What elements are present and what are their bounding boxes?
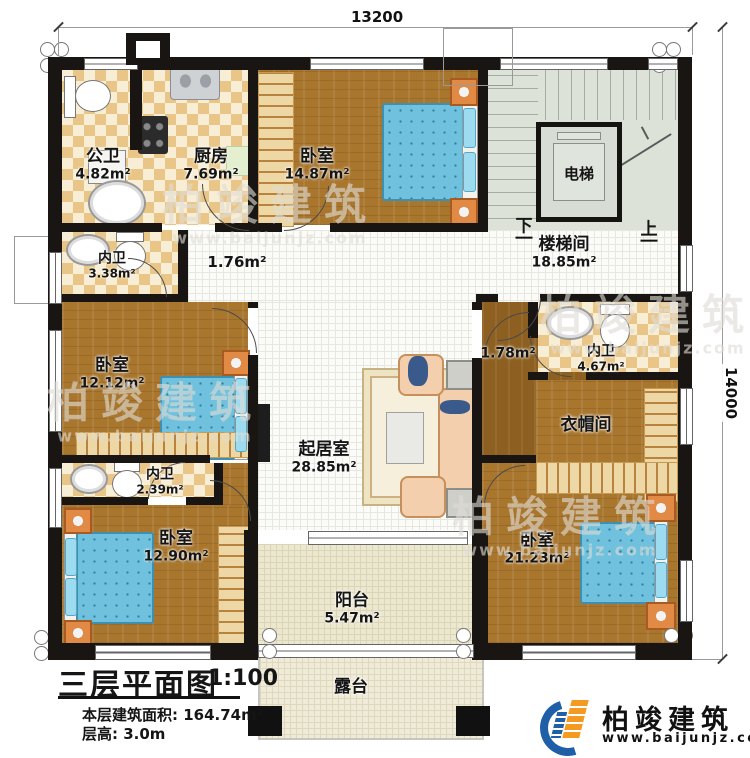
- floor-stairwell-left-run: [488, 70, 538, 232]
- bed-top-mattress: [382, 103, 466, 201]
- wall-hall-stair: [478, 70, 488, 232]
- wall-under-bath: [62, 223, 162, 232]
- stair-down-label: 下: [516, 218, 533, 239]
- coffee-table: [386, 412, 424, 464]
- room-label-living: 起居室 28.85m²: [291, 442, 356, 477]
- skylight-outline: [443, 28, 513, 86]
- pillow: [655, 524, 667, 560]
- room-label-bath-bottom: 内卫 2.39m²: [136, 467, 183, 496]
- wall-living-left-a: [248, 302, 258, 308]
- post-circle: [262, 644, 277, 659]
- post-circle: [666, 42, 681, 57]
- window: [680, 388, 693, 445]
- wall-bath-kitchen: [130, 70, 142, 150]
- plan-floor-height-text: 层高: 3.0m: [82, 723, 165, 744]
- tv: [258, 404, 270, 462]
- wall-right-top-a: [476, 294, 498, 302]
- window: [310, 58, 424, 70]
- wall-bath-right-bottom-a: [528, 372, 548, 380]
- door-bedroom-left: [212, 308, 257, 353]
- chimney-core: [136, 41, 160, 58]
- room-label-terrace: 露台: [334, 679, 368, 697]
- room-label-bedroom-top: 卧室 14.87m²: [284, 149, 349, 184]
- sliding-door-balcony: [308, 531, 468, 545]
- elevator-slot: [557, 132, 601, 140]
- nightstand: [450, 198, 478, 226]
- window: [49, 468, 62, 528]
- room-label-bedroom-bl: 卧室 12.90m²: [143, 531, 208, 566]
- post-circle: [456, 628, 471, 643]
- wall-living-right-a: [472, 302, 482, 310]
- elevator-shaft: 电梯: [536, 122, 622, 222]
- railing-posts-left: [262, 628, 277, 659]
- stove: [138, 116, 168, 154]
- wall-living-right-b: [472, 358, 482, 530]
- window: [49, 330, 62, 432]
- wall-bath-top-right: [178, 230, 188, 296]
- dim-label-right: 14000: [722, 364, 740, 422]
- balcony-railing: [258, 644, 474, 658]
- nightstand: [646, 494, 676, 522]
- dim-riser-right: [692, 27, 693, 55]
- post-circle: [262, 628, 277, 643]
- area-label-hall-left: 1.76m²: [207, 253, 266, 271]
- bath-sink: [88, 180, 146, 226]
- nightstand: [646, 602, 676, 630]
- armchair: [400, 476, 446, 518]
- room-label-bedroom-left: 卧室 12.12m²: [79, 358, 144, 393]
- room-label-public-bath: 公卫 4.82m²: [75, 149, 130, 184]
- room-label-balcony: 阳台 5.47m²: [324, 593, 379, 628]
- room-label-kitchen: 厨房 7.69m²: [183, 149, 238, 184]
- window: [49, 252, 62, 304]
- wall-cloak-bedroom: [482, 455, 536, 463]
- nightstand: [64, 508, 92, 534]
- post-circle: [456, 644, 471, 659]
- railing-posts-right: [456, 628, 471, 659]
- bed-bl-mattress: [76, 532, 154, 624]
- brand-logo-mark: [540, 692, 594, 750]
- elevator-label: 电梯: [541, 163, 617, 184]
- dim-riser-bottom: [692, 659, 722, 660]
- window: [680, 560, 693, 622]
- dim-riser-left: [58, 27, 59, 55]
- window: [500, 58, 608, 70]
- wall-right-top-b: [540, 294, 678, 302]
- pillow: [235, 416, 247, 452]
- title-underline: [58, 696, 240, 699]
- stair-up-label: 上: [641, 221, 658, 242]
- bed-br-mattress: [580, 522, 658, 604]
- wall-living-left-b: [248, 355, 258, 530]
- dim-label-top: 13200: [348, 8, 406, 26]
- post-circle: [664, 628, 679, 643]
- toilet-bowl: [75, 80, 111, 112]
- pillow: [65, 538, 77, 576]
- room-label-bath-right: 内卫 4.67m²: [577, 344, 624, 373]
- plan-scale: 1:100: [208, 666, 278, 691]
- person-sitting: [408, 356, 428, 386]
- pillow: [655, 562, 667, 598]
- ac-platform: [14, 236, 52, 304]
- plan-area-text: 本层建筑面积: 164.74m²: [82, 704, 263, 725]
- post-circle: [34, 646, 49, 661]
- floor-terrace: [258, 648, 484, 740]
- window: [680, 245, 693, 292]
- posts-outside-bl: [34, 630, 49, 661]
- bed-top-pillow: [463, 152, 476, 192]
- wall-kitchen-bedroom: [248, 70, 258, 232]
- area-label-hall-right: 1.78m²: [480, 346, 535, 363]
- person-lying: [440, 400, 470, 414]
- window: [95, 645, 211, 660]
- dim-line-right: [722, 27, 723, 660]
- bed-top-pillow: [463, 108, 476, 148]
- wall-balcony-left: [244, 530, 258, 660]
- wall-balcony-right: [472, 530, 488, 660]
- room-label-stairwell: 楼梯间 18.85m²: [531, 237, 596, 272]
- wall-bath-top-bottom: [62, 294, 188, 302]
- pillow: [235, 378, 247, 414]
- bath-sink: [546, 306, 594, 340]
- floor-plan-canvas: 电梯: [0, 0, 750, 758]
- window: [648, 58, 678, 70]
- cloakroom-rack-horizontal: [536, 462, 678, 494]
- bath-sink: [70, 464, 108, 494]
- stair-treads-top: [545, 70, 678, 120]
- post-circle: [54, 42, 69, 57]
- wall-bath-bottom-a: [62, 497, 148, 505]
- dim-line-top: [58, 27, 692, 28]
- brand-website: www.baijunjz.com: [602, 731, 750, 746]
- pillow: [65, 578, 77, 616]
- room-label-bath-top: 内卫 3.38m²: [88, 251, 135, 280]
- window: [522, 645, 636, 660]
- room-label-cloakroom: 衣帽间: [561, 417, 612, 435]
- post-circle: [652, 42, 667, 57]
- post-circle: [34, 630, 49, 645]
- terrace-post-right: [456, 706, 490, 736]
- post-circle: [40, 42, 55, 57]
- nightstand: [222, 350, 250, 376]
- room-label-bedroom-br: 卧室 21.23m²: [504, 533, 569, 568]
- wall-bedroom-left-bottom: [62, 455, 210, 463]
- wall-under-bedroom-top-b: [330, 223, 482, 232]
